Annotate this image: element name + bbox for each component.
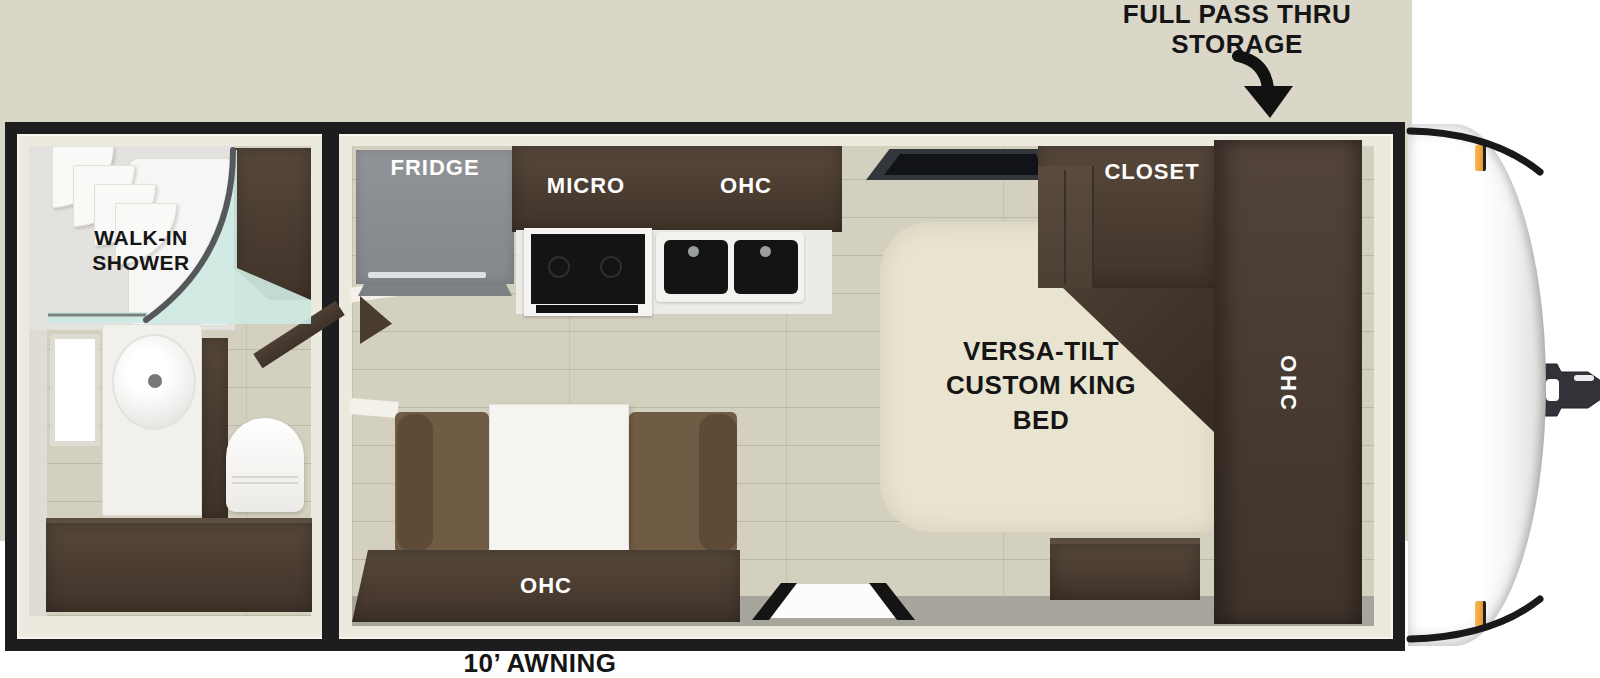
sink-drain-icon xyxy=(148,374,162,388)
kitchen-ohc-label: OHC xyxy=(704,174,788,198)
floorplan-canvas: WALK-IN SHOWER FRIDGE MICRO OHC VERSA-TI… xyxy=(0,0,1600,678)
burner-icon xyxy=(600,256,622,278)
stove-handle xyxy=(536,305,638,313)
toilet-icon xyxy=(226,418,304,512)
bathroom-divider-wall xyxy=(322,134,339,639)
bed-foot-bench xyxy=(1050,538,1200,600)
closet-door-cabinet xyxy=(1038,166,1094,288)
awning-label: 10’ AWNING xyxy=(418,648,662,678)
bedroom-ohc-label: OHC xyxy=(1276,355,1300,413)
burner-icon xyxy=(548,256,570,278)
micro-label: MICRO xyxy=(534,174,638,198)
faucet-icon xyxy=(760,246,771,257)
sofa-ohc-label: OHC xyxy=(504,574,588,598)
bedroom-ohc-label-wrap: OHC xyxy=(1252,346,1324,422)
bed-window-glass xyxy=(884,154,1044,175)
hitch-notch xyxy=(1546,379,1559,401)
marker-light-top-icon xyxy=(1475,145,1486,171)
hitch-highlight xyxy=(1574,375,1594,381)
fridge-base xyxy=(358,284,512,296)
closet-label: CLOSET xyxy=(1100,160,1204,184)
vanity-side-cabinet xyxy=(202,338,228,520)
faucet-icon xyxy=(688,246,699,257)
pass-thru-storage-label: FULL PASS THRU STORAGE xyxy=(1112,0,1362,60)
fridge-label: FRIDGE xyxy=(361,156,509,180)
bathroom-upper-cabinet xyxy=(234,148,311,300)
closet-door-divider xyxy=(1064,170,1066,284)
fridge-handle xyxy=(368,272,486,278)
bathroom-window xyxy=(50,334,100,446)
sofa-left-arm xyxy=(397,414,433,552)
marker-light-bottom-icon xyxy=(1475,601,1486,627)
walk-in-shower-label: WALK-IN SHOWER xyxy=(55,226,227,276)
bathroom-lower-cabinet xyxy=(46,518,312,612)
toilet-seat-lines xyxy=(232,476,298,484)
sofa-table xyxy=(489,404,629,554)
bed-label: VERSA-TILT CUSTOM KING BED xyxy=(938,334,1144,437)
sofa-right-arm xyxy=(699,414,737,552)
